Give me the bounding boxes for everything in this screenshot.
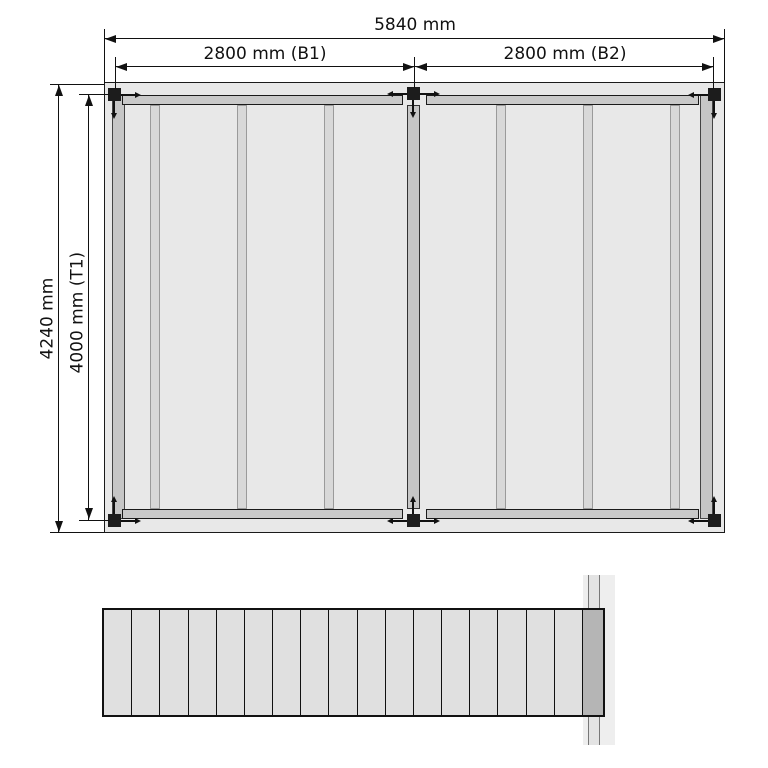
post-anchor-tip: [410, 112, 416, 118]
dim-arrow: [713, 35, 724, 43]
post-anchor-arm: [713, 101, 715, 113]
post-anchor-arm: [113, 101, 115, 113]
post-anchor-arm: [420, 520, 434, 522]
deck-board: [470, 610, 498, 715]
deck-board: [301, 610, 329, 715]
floor-joist: [324, 105, 334, 509]
post-anchor-tip: [135, 518, 141, 524]
deck-board: [189, 610, 217, 715]
post-anchor-arm: [121, 520, 135, 522]
post-anchor-tip: [688, 518, 694, 524]
dim-line-total-depth: [58, 84, 59, 533]
rim-joist-left: [112, 95, 125, 519]
post-anchor-arm: [393, 93, 407, 95]
post-anchor-tip: [410, 496, 416, 502]
extension-line: [713, 57, 714, 89]
post-anchor-tip: [711, 496, 717, 502]
post-anchor-tip: [135, 92, 141, 98]
dim-label-bay1: 2800 mm (B1): [195, 46, 335, 63]
deck-board: [498, 610, 526, 715]
dim-arrow: [85, 95, 93, 106]
floor-joist: [583, 105, 593, 509]
dim-label-inner-depth: 4000 mm (T1): [70, 262, 87, 374]
deck-board: [104, 610, 132, 715]
dim-arrow: [55, 85, 63, 96]
extension-line: [79, 520, 109, 521]
beam-b1-bottom: [122, 509, 403, 519]
deck-board: [273, 610, 301, 715]
dim-arrow: [85, 508, 93, 519]
deck-board: [442, 610, 470, 715]
post: [407, 87, 420, 100]
dim-label-total-width: 5840 mm: [355, 17, 475, 34]
post-anchor-arm: [113, 502, 115, 514]
floor-joist: [670, 105, 680, 509]
deck-board: [160, 610, 188, 715]
extension-line: [115, 57, 116, 89]
deck-board-band: [102, 608, 605, 717]
beam-b1-top: [122, 95, 403, 105]
rim-joist-right: [700, 95, 713, 519]
deck-board: [414, 610, 442, 715]
dim-label-bay2: 2800 mm (B2): [495, 46, 635, 63]
deck-board: [245, 610, 273, 715]
deck-board: [555, 610, 583, 715]
floor-joist: [237, 105, 247, 509]
post-anchor-arm: [412, 502, 414, 514]
post-anchor-tip: [688, 92, 694, 98]
deck-board: [527, 610, 555, 715]
dim-line-inner-depth: [88, 94, 89, 520]
post-anchor-arm: [694, 94, 708, 96]
post-anchor-arm: [393, 520, 407, 522]
extension-line: [79, 94, 109, 95]
post: [708, 88, 721, 101]
post-anchor-tip: [387, 91, 393, 97]
post-anchor-tip: [711, 113, 717, 119]
deck-board: [358, 610, 386, 715]
dim-arrow: [416, 63, 427, 71]
extension-line: [414, 57, 415, 88]
post-anchor-arm: [420, 93, 434, 95]
post-anchor-tip: [111, 496, 117, 502]
deck-board: [329, 610, 357, 715]
dim-arrow: [702, 63, 713, 71]
post-anchor-tip: [111, 113, 117, 119]
post-anchor-tip: [387, 518, 393, 524]
beam-b2-bottom: [426, 509, 699, 519]
dim-arrow: [55, 521, 63, 532]
post-anchor-arm: [121, 94, 135, 96]
floor-joist: [496, 105, 506, 509]
post: [108, 514, 121, 527]
floor-joist: [150, 105, 160, 509]
post: [108, 88, 121, 101]
deck-board: [132, 610, 160, 715]
dim-arrow: [105, 35, 116, 43]
post-anchor-arm: [412, 100, 414, 112]
post: [708, 514, 721, 527]
deck-board: [386, 610, 414, 715]
dim-arrow: [116, 63, 127, 71]
post-anchor-tip: [434, 91, 440, 97]
construction-drawing: 5840 mm 2800 mm (B1) 2800 mm (B2) 4240 m…: [0, 0, 768, 768]
dim-arrow: [403, 63, 414, 71]
beam-b2-top: [426, 95, 699, 105]
post-anchor-arm: [694, 520, 708, 522]
dim-line-bays: [115, 66, 714, 67]
dim-line-total-width: [104, 38, 725, 39]
center-joist: [407, 105, 420, 509]
dim-label-total-depth: 4240 mm: [40, 282, 57, 360]
deck-board: [217, 610, 245, 715]
post: [407, 514, 420, 527]
post-anchor-tip: [434, 518, 440, 524]
end-board-dark: [583, 610, 603, 715]
post-anchor-arm: [713, 502, 715, 514]
